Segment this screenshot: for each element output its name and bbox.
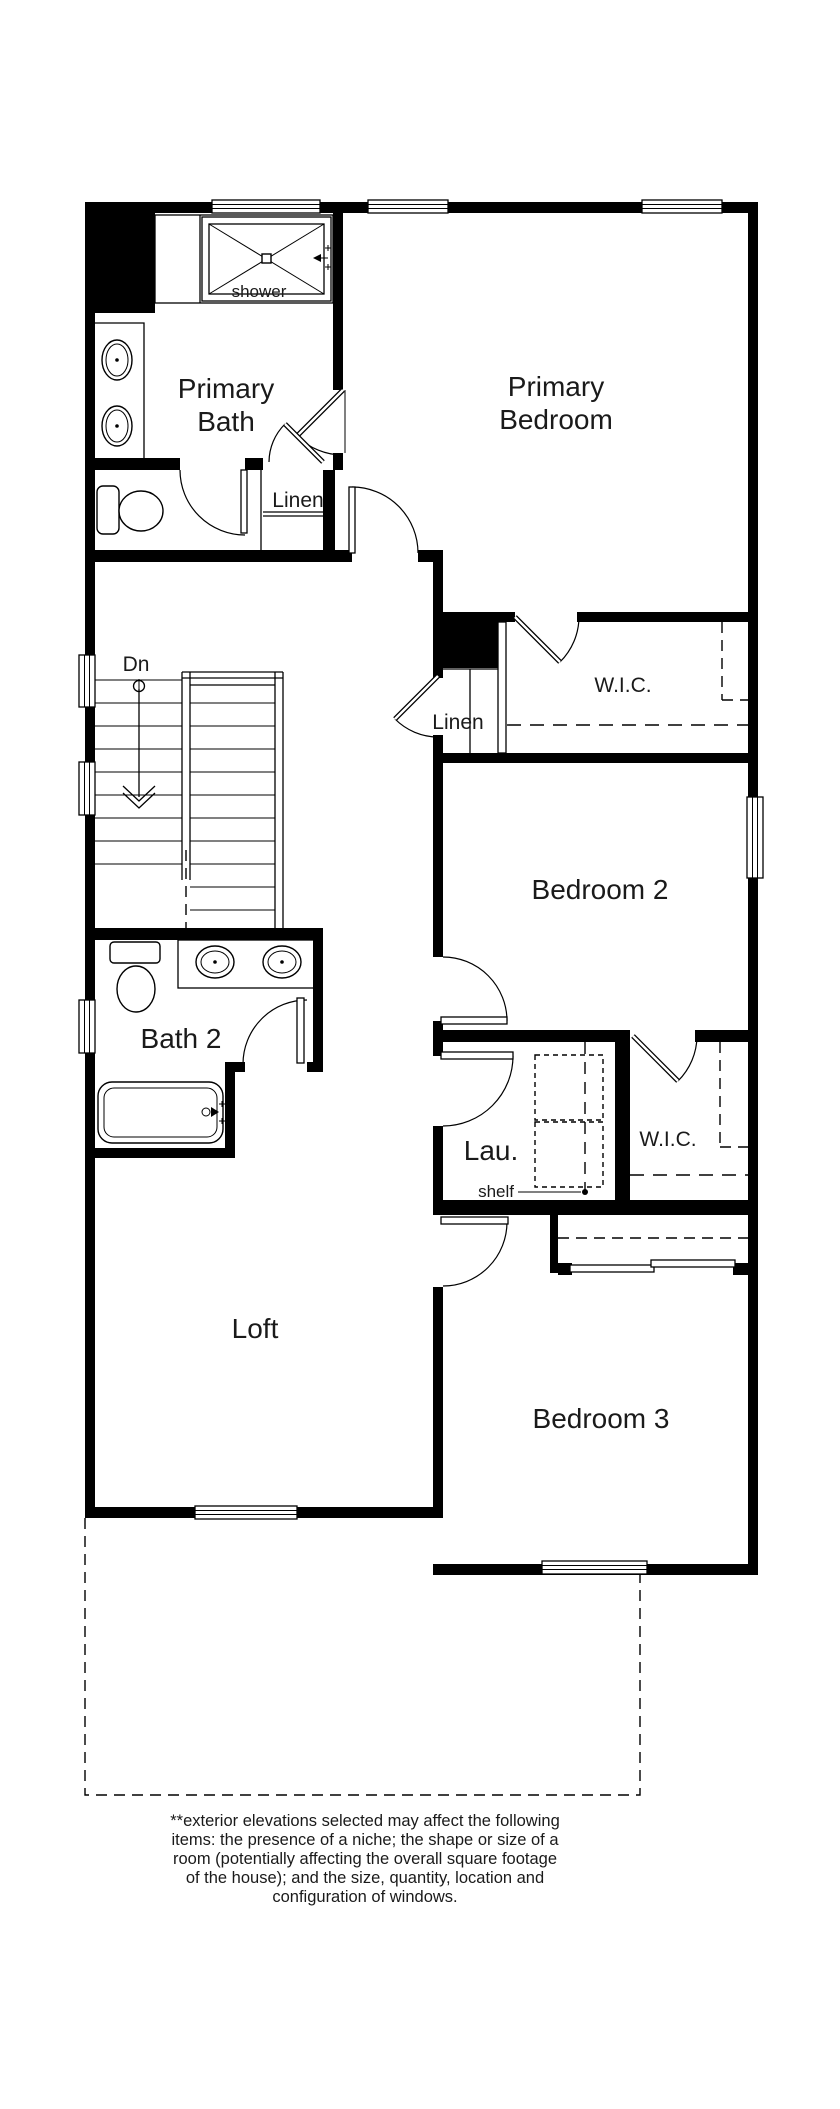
window: [642, 200, 722, 213]
bath2-label: Bath 2: [141, 1023, 222, 1054]
window: [79, 655, 95, 707]
bath2-vanity: [178, 940, 315, 988]
stairs-down-arrow: [123, 679, 155, 808]
disclaimer-line: of the house); and the size, quantity, l…: [186, 1869, 544, 1887]
bedroom3-closet: [558, 1238, 749, 1275]
floor-plan-drawing: Primary Bath Primary Bedroom shower Line…: [0, 0, 840, 2109]
primary-bedroom-door: [349, 487, 418, 553]
primary-bath-label: Primary: [178, 373, 274, 404]
chase-block-top-left: [85, 202, 155, 313]
shower-head-icon: [313, 245, 331, 270]
primary-bath-label: Bath: [197, 406, 255, 437]
window: [195, 1506, 297, 1519]
window: [368, 200, 448, 213]
window: [79, 1000, 95, 1053]
disclaimer-line: configuration of windows.: [272, 1888, 457, 1906]
closet-bypass-door: [651, 1260, 735, 1267]
window: [542, 1561, 647, 1574]
window: [747, 797, 763, 878]
wic1-door: [515, 617, 579, 662]
wic1-label: W.I.C.: [594, 674, 651, 697]
bedroom3-door: [441, 1217, 508, 1286]
toilet-room-door: [180, 470, 247, 535]
disclaimer-line: **exterior elevations selected may affec…: [170, 1812, 560, 1830]
disclaimer-note: **exterior elevations selected may affec…: [170, 1812, 560, 1906]
bedroom2-label: Bedroom 2: [532, 874, 669, 905]
linen1-door: [269, 424, 323, 462]
shower-label: shower: [232, 282, 287, 301]
primary-bath-toilet: [97, 486, 163, 534]
bedroom3-label: Bedroom 3: [533, 1403, 670, 1434]
bath2-toilet: [110, 942, 160, 1012]
window: [79, 762, 95, 815]
stairs-down-label: Dn: [123, 653, 150, 676]
closet-bypass-door: [570, 1265, 654, 1272]
laundry-label: Lau.: [464, 1135, 519, 1166]
window: [212, 200, 320, 213]
primary-bedroom-label: Primary: [508, 371, 604, 402]
labels: Primary Bath Primary Bedroom shower Line…: [123, 282, 697, 1434]
loft-label: Loft: [232, 1313, 279, 1344]
patio-outline: [85, 1518, 640, 1795]
stairs: [95, 672, 283, 933]
disclaimer-line: items: the presence of a niche; the shap…: [171, 1831, 559, 1849]
wic2-label: W.I.C.: [639, 1128, 696, 1151]
bath2-tub: [98, 1082, 225, 1143]
wic2-door: [633, 1036, 697, 1081]
linen1-label: Linen: [272, 489, 323, 512]
floor-plan-page: Primary Bath Primary Bedroom shower Line…: [0, 0, 840, 2109]
linen2-label: Linen: [432, 711, 483, 734]
primary-bedroom-label: Bedroom: [499, 404, 613, 435]
primary-bath-vanity: [95, 323, 144, 458]
laundry-appliances: [518, 1042, 603, 1195]
disclaimer-line: room (potentially affecting the overall …: [173, 1850, 557, 1868]
bath2-door: [243, 998, 307, 1064]
shelf-label: shelf: [478, 1182, 514, 1201]
stair-treads-right: [190, 703, 275, 910]
laundry-door: [441, 1052, 513, 1126]
bedroom2-door: [441, 957, 507, 1024]
wic2-closet: [630, 1042, 748, 1175]
